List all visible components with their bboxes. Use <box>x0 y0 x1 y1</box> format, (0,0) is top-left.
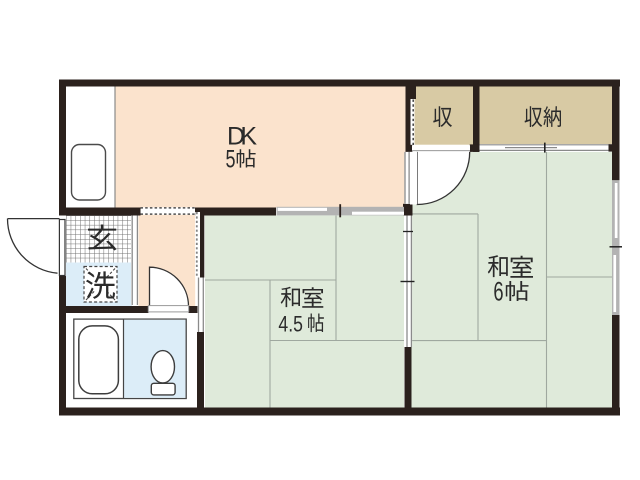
svg-text:6: 6 <box>493 276 503 306</box>
svg-text:4.5: 4.5 <box>278 311 303 336</box>
svg-text:5: 5 <box>226 145 236 174</box>
